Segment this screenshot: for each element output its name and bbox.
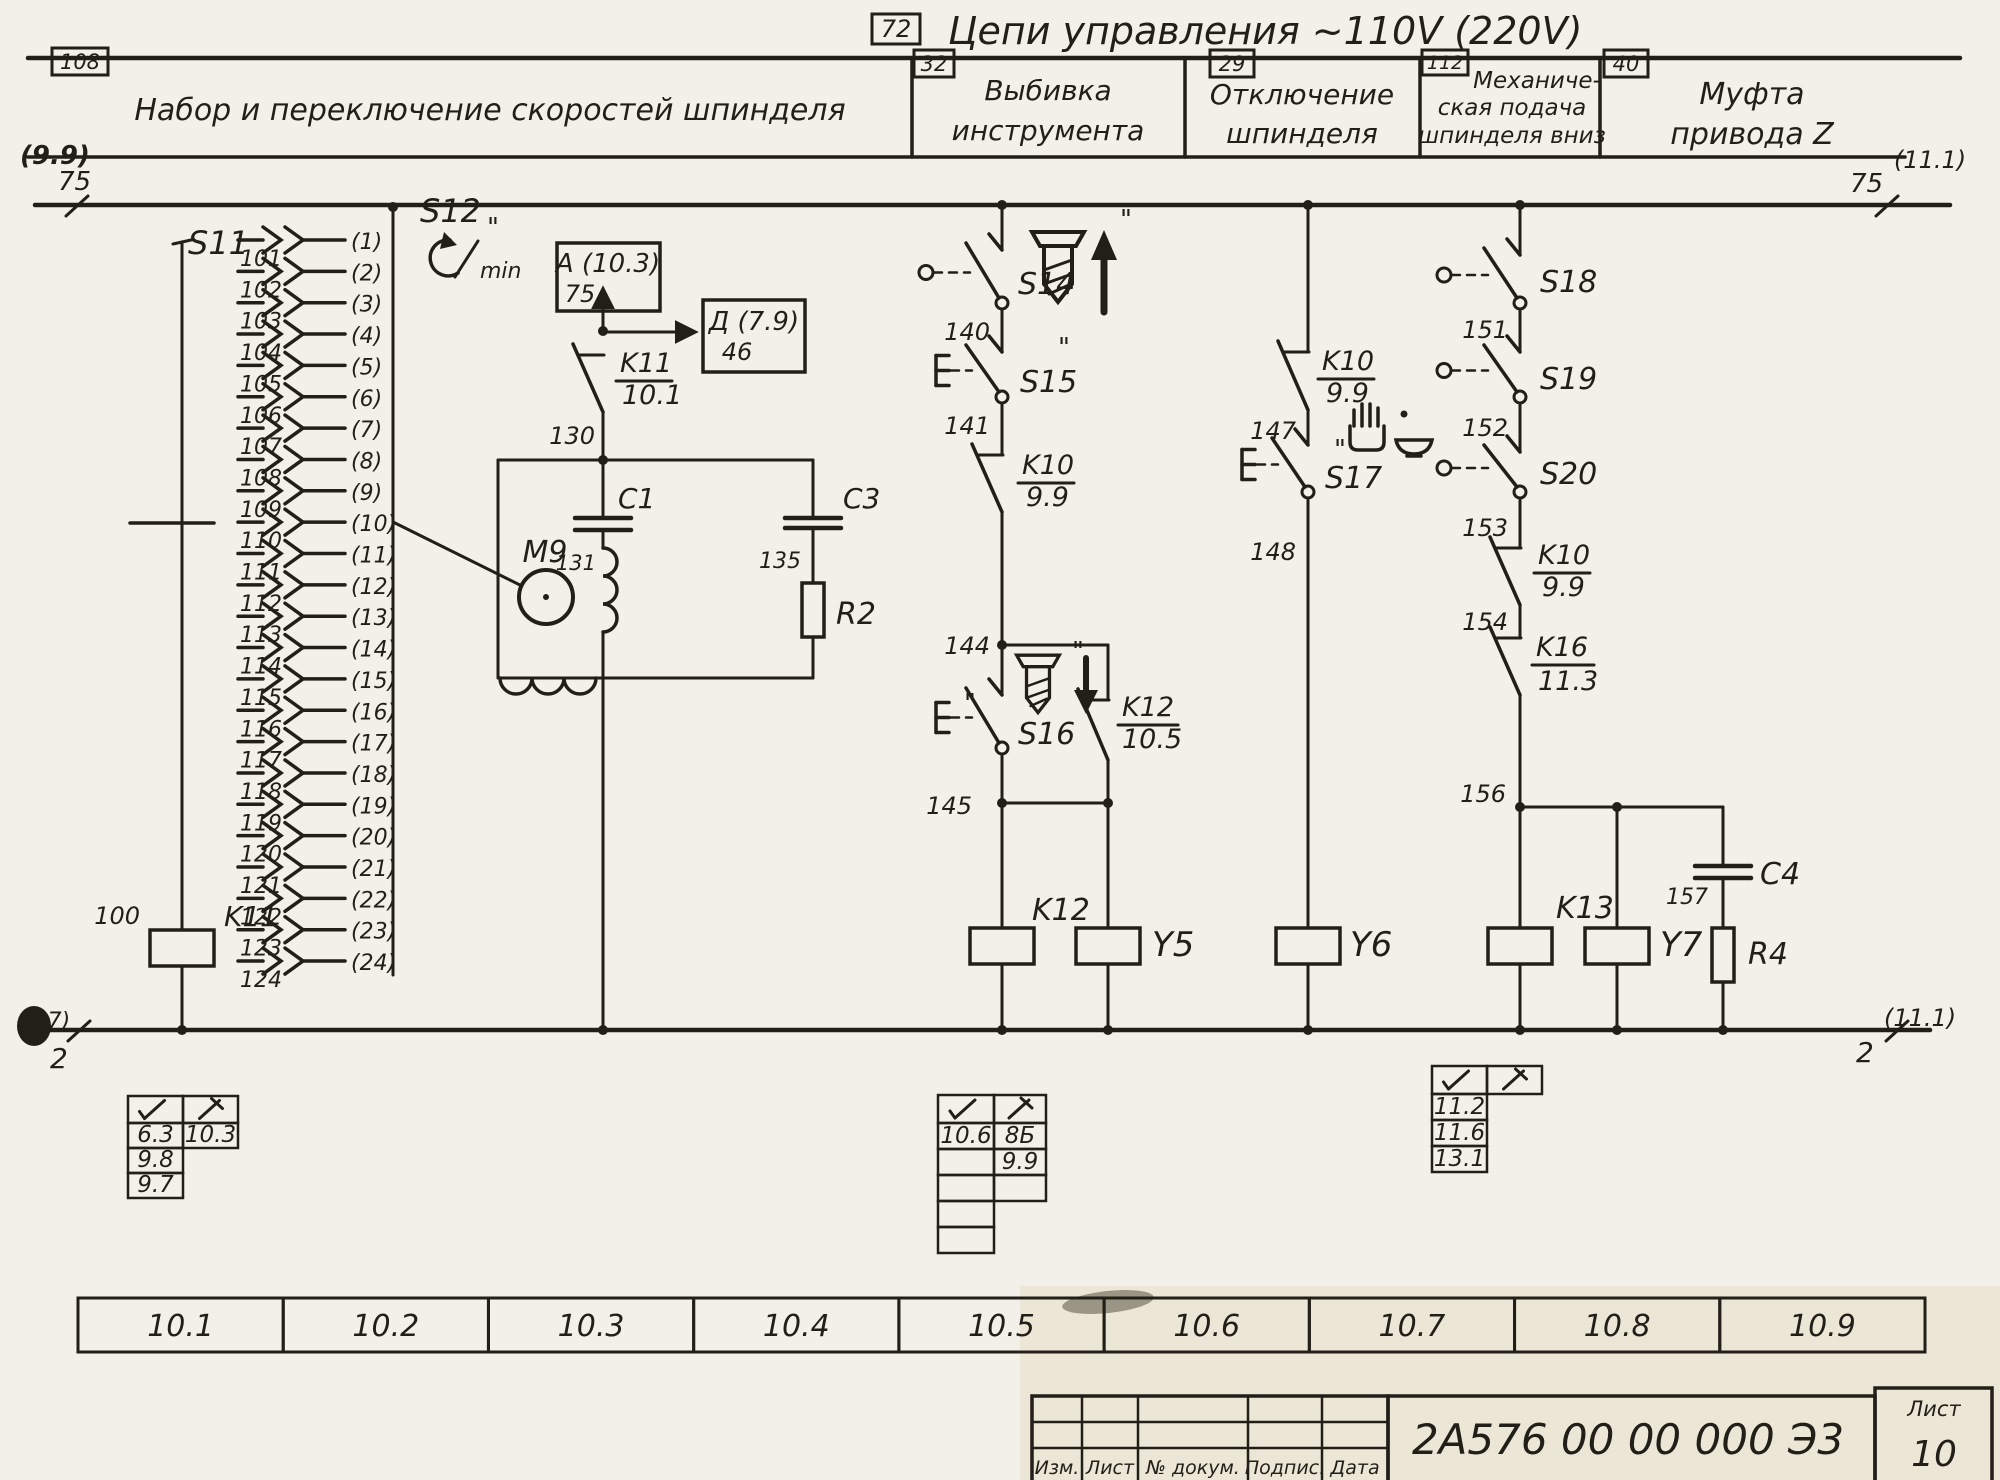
y5-solenoid bbox=[1076, 928, 1140, 964]
bus-wire: 2 bbox=[1856, 1036, 1874, 1069]
schematic-wiring: 101(1)102(2)103(3)104(4)105(5)106(6)107(… bbox=[28, 58, 1992, 1480]
wire bbox=[989, 679, 1002, 695]
wire-label: 156 bbox=[1460, 780, 1506, 808]
wire bbox=[285, 791, 303, 817]
ditto-mark: " bbox=[1072, 637, 1084, 667]
contact-number: (11) bbox=[351, 544, 396, 569]
ditto-mark: " bbox=[1058, 333, 1070, 363]
xref-value: 10.6 bbox=[940, 1123, 991, 1149]
contact-name: K12 bbox=[1122, 692, 1174, 723]
contact-number: (22) bbox=[351, 888, 396, 913]
wire-label: 153 bbox=[1462, 514, 1508, 542]
junction-dot bbox=[177, 1025, 187, 1035]
hand-icon bbox=[1350, 404, 1384, 450]
contact-number: (1) bbox=[351, 230, 382, 255]
contact-name: K10 bbox=[1322, 346, 1374, 377]
contact-number: (17) bbox=[351, 732, 396, 757]
wire bbox=[955, 1100, 975, 1118]
bus-wire: 75 bbox=[1850, 169, 1883, 199]
bus-wire: 2 bbox=[50, 1042, 68, 1075]
section-label: инструмента bbox=[952, 114, 1145, 147]
title-block-col-label: № докум. bbox=[1145, 1457, 1240, 1479]
coil-label: Y7 bbox=[1660, 925, 1703, 965]
ref-box-d-label: Д (7.9) bbox=[708, 307, 799, 337]
sheet-zone-number: 10.1 bbox=[147, 1309, 214, 1344]
junction-dot bbox=[598, 1025, 608, 1035]
s12-label: S12 bbox=[420, 192, 481, 230]
section-label: Выбивка bbox=[984, 74, 1111, 107]
xref-value: 8Б bbox=[1005, 1123, 1035, 1149]
wire bbox=[140, 1112, 145, 1119]
contact-terminal bbox=[996, 742, 1008, 754]
wire bbox=[285, 415, 303, 441]
sheet-zone-number: 10.3 bbox=[558, 1309, 625, 1344]
wire-label: 145 bbox=[926, 792, 972, 820]
xref-value: 9.9 bbox=[1002, 1149, 1039, 1175]
wire-label: 151 bbox=[1462, 316, 1508, 344]
dot-mark bbox=[1401, 411, 1408, 418]
section-label: ская подача bbox=[1438, 95, 1587, 121]
ref-box-a-wire: 75 bbox=[565, 280, 596, 308]
contact-name: K10 bbox=[1538, 540, 1590, 571]
contact-number: (24) bbox=[351, 951, 396, 976]
ditto-mark: " bbox=[487, 213, 499, 243]
title-block-col-label: Дата bbox=[1329, 1457, 1379, 1479]
junction-dot bbox=[1303, 1025, 1313, 1035]
contact-number: (13) bbox=[351, 606, 396, 631]
bus-wire: 75 bbox=[58, 167, 91, 197]
section-tag: 32 bbox=[921, 52, 948, 76]
xref-value: 10.3 bbox=[185, 1122, 236, 1148]
contact-terminal bbox=[1514, 391, 1526, 403]
section-tag: 40 bbox=[1613, 52, 1640, 76]
section-label: шпинделя bbox=[1226, 117, 1378, 150]
k12-coil bbox=[970, 928, 1034, 964]
wire bbox=[285, 948, 303, 974]
cap-label: C3 bbox=[843, 482, 880, 515]
wire bbox=[285, 509, 303, 535]
wire bbox=[1507, 239, 1520, 255]
wire bbox=[950, 1111, 955, 1118]
contact-terminal bbox=[1437, 364, 1451, 378]
contact-number: (15) bbox=[351, 669, 396, 694]
switch-label: S20 bbox=[1540, 457, 1597, 492]
sheet-zone-number: 10.9 bbox=[1789, 1309, 1856, 1344]
junction-dot bbox=[388, 202, 398, 212]
xref-table-left: 6.39.89.710.3 bbox=[137, 1122, 236, 1198]
ref-box-a-label: А (10.3) bbox=[554, 249, 660, 279]
schematic-static: 72 Цепи управления ~110V (220V) 108 32 2… bbox=[17, 9, 1966, 1075]
wire bbox=[1484, 445, 1517, 487]
coil-label: K12 bbox=[1032, 893, 1090, 928]
switch-label: S15 bbox=[1020, 365, 1077, 400]
wire-label: 140 bbox=[944, 318, 990, 346]
junction-dot bbox=[1718, 1025, 1728, 1035]
wire bbox=[145, 1101, 165, 1119]
sheet-zone-number: 10.6 bbox=[1173, 1309, 1240, 1344]
contact-number: (18) bbox=[351, 763, 396, 788]
wire bbox=[1272, 438, 1305, 487]
wire bbox=[966, 243, 999, 298]
wire-label: 157 bbox=[1666, 885, 1708, 910]
xref-table-right: 11.211.613.1 bbox=[1434, 1094, 1485, 1172]
cap-label: C1 bbox=[618, 482, 655, 515]
resistor-body bbox=[802, 583, 824, 637]
wire-label: 135 bbox=[759, 549, 801, 574]
contact-ref: 10.5 bbox=[1122, 724, 1182, 755]
wire bbox=[285, 227, 303, 253]
xref-cell bbox=[994, 1175, 1046, 1201]
contact-ref: 9.9 bbox=[1542, 572, 1585, 603]
arrow-up-head-icon bbox=[1091, 230, 1117, 260]
contact-name: K16 bbox=[1536, 632, 1588, 663]
contact-number: (2) bbox=[351, 261, 382, 286]
title-tag: 72 bbox=[881, 15, 912, 43]
section-label: привода Z bbox=[1670, 117, 1835, 152]
xref-cell bbox=[938, 1175, 994, 1201]
contact-terminal bbox=[1437, 461, 1451, 475]
sheet-label: Лист bbox=[1906, 1397, 1961, 1421]
wire bbox=[285, 384, 303, 410]
wire bbox=[285, 697, 303, 723]
wire bbox=[1295, 429, 1308, 445]
contact-terminal bbox=[996, 391, 1008, 403]
xref-value: 11.2 bbox=[1434, 1094, 1485, 1120]
ink-blob bbox=[17, 1006, 51, 1046]
xref-value: 9.8 bbox=[137, 1147, 174, 1173]
wire bbox=[285, 823, 303, 849]
wire-label: 148 bbox=[1250, 538, 1296, 566]
ditto-mark: " bbox=[1120, 205, 1132, 235]
winding-wave bbox=[500, 678, 596, 694]
sheet-number: 10 bbox=[1911, 1434, 1957, 1475]
s12-unit: min bbox=[480, 259, 522, 284]
wire bbox=[285, 258, 303, 284]
inductor-131 bbox=[603, 548, 617, 632]
resistor-label: R2 bbox=[836, 597, 876, 632]
contact-terminal bbox=[919, 266, 933, 280]
wire bbox=[285, 478, 303, 504]
section-label: Муфта bbox=[1699, 77, 1804, 112]
wire bbox=[1484, 345, 1517, 392]
contact-number: (10) bbox=[351, 512, 396, 537]
section-tag: 29 bbox=[1219, 52, 1246, 76]
ref-box-d-wire: 46 bbox=[722, 338, 753, 366]
wire bbox=[285, 446, 303, 472]
contact-number: (6) bbox=[351, 387, 382, 412]
section-label: Набор и переключение скоростей шпинделя bbox=[134, 93, 845, 128]
contact-terminal bbox=[1302, 486, 1314, 498]
k13-coil bbox=[1488, 928, 1552, 964]
title-block-col-label: Подпис. bbox=[1245, 1457, 1325, 1479]
wire bbox=[1507, 336, 1520, 352]
junction-dot bbox=[1103, 1025, 1113, 1035]
xref-value: 11.6 bbox=[1434, 1120, 1485, 1146]
wire-label: 131 bbox=[556, 551, 596, 575]
contact-ref: 11.3 bbox=[1538, 666, 1598, 697]
wire-label: 130 bbox=[549, 422, 595, 450]
contact-number: (3) bbox=[351, 293, 382, 318]
wire bbox=[285, 603, 303, 629]
contact-number: (12) bbox=[351, 575, 396, 600]
section-label: Отключение bbox=[1210, 78, 1394, 111]
wire bbox=[966, 345, 999, 392]
wire bbox=[285, 729, 303, 755]
wire-label: 152 bbox=[1462, 414, 1508, 442]
y7-solenoid bbox=[1585, 928, 1649, 964]
xref-value: 6.3 bbox=[137, 1122, 174, 1148]
wire-label: 100 bbox=[94, 902, 140, 930]
xref-cell bbox=[938, 1149, 994, 1175]
schematic-canvas: 72 Цепи управления ~110V (220V) 108 32 2… bbox=[0, 0, 2000, 1480]
contact-number: (9) bbox=[351, 481, 382, 506]
wire bbox=[1507, 436, 1520, 452]
wire bbox=[1444, 1082, 1449, 1089]
section-label: шпинделя вниз bbox=[1418, 123, 1606, 149]
wire bbox=[989, 336, 1002, 352]
switch-label: S17 bbox=[1325, 461, 1382, 496]
wire-label: 144 bbox=[944, 632, 990, 660]
contact-name: K11 bbox=[620, 348, 672, 379]
wire bbox=[285, 541, 303, 567]
junction-dot bbox=[1515, 1025, 1525, 1035]
contact-terminal bbox=[1514, 297, 1526, 309]
wire bbox=[1484, 248, 1517, 298]
drill-bit-icon bbox=[1017, 655, 1060, 712]
y6-solenoid bbox=[1276, 928, 1340, 964]
sheet-zone-strip: 10.110.210.310.410.510.610.710.810.9 bbox=[147, 1309, 1856, 1344]
contact-terminal bbox=[1437, 268, 1451, 282]
wire bbox=[285, 885, 303, 911]
xref-value: 13.1 bbox=[1434, 1146, 1485, 1172]
junction-dot bbox=[1612, 1025, 1622, 1035]
coil-label: K13 bbox=[1556, 891, 1614, 926]
contact-terminal bbox=[1514, 486, 1526, 498]
scanned-schematic-page: 72 Цепи управления ~110V (220V) 108 32 2… bbox=[0, 0, 2000, 1480]
contact-number: (16) bbox=[351, 700, 396, 725]
switch-label: S16 bbox=[1018, 717, 1075, 752]
pointer-line bbox=[393, 522, 522, 586]
wire bbox=[285, 572, 303, 598]
coil-label: Y6 bbox=[1350, 925, 1392, 965]
section-label: Механиче- bbox=[1473, 68, 1601, 94]
contact-number: (5) bbox=[351, 355, 382, 380]
k11-coil bbox=[150, 930, 214, 966]
doc-number: 2А576 00 00 000 Э3 bbox=[1412, 1415, 1844, 1464]
xref-value: 9.7 bbox=[137, 1172, 174, 1198]
wire bbox=[285, 290, 303, 316]
sheet-zone-number: 10.7 bbox=[1379, 1309, 1446, 1344]
title-block-col-label: Лист bbox=[1085, 1457, 1135, 1479]
section-tag: 112 bbox=[1427, 52, 1463, 74]
title-block-col-label: Изм. bbox=[1035, 1457, 1080, 1479]
contact-number: (14) bbox=[351, 638, 396, 663]
cap-label: C4 bbox=[1760, 857, 1800, 892]
wire bbox=[285, 666, 303, 692]
section-tag: 108 bbox=[60, 50, 100, 74]
wire bbox=[1449, 1071, 1469, 1089]
motor-center-dot bbox=[543, 594, 549, 600]
xref-cell bbox=[938, 1227, 994, 1253]
contact-name: K10 bbox=[1022, 450, 1074, 481]
contact-ref: 9.9 bbox=[1026, 482, 1069, 513]
resistor-body bbox=[1712, 928, 1734, 982]
wire-label: 141 bbox=[944, 412, 990, 440]
wire bbox=[285, 917, 303, 943]
xref-cell bbox=[938, 1201, 994, 1227]
contact-ref: 10.1 bbox=[622, 380, 682, 411]
switch-label: S18 bbox=[1540, 265, 1597, 300]
wire bbox=[285, 321, 303, 347]
contact-number: (21) bbox=[351, 857, 396, 882]
junction-dot bbox=[997, 1025, 1007, 1035]
wire-label: 154 bbox=[1462, 608, 1508, 636]
wire bbox=[285, 352, 303, 378]
contact-terminal bbox=[996, 297, 1008, 309]
rotation-arrowhead-icon bbox=[440, 232, 457, 249]
resistor-label: R4 bbox=[1748, 937, 1788, 972]
bus-ref: (11.1) bbox=[1894, 146, 1966, 174]
cup-icon bbox=[1396, 440, 1432, 456]
contact-number: (7) bbox=[351, 418, 382, 443]
wire bbox=[989, 234, 1002, 250]
contact-number: (4) bbox=[351, 324, 382, 349]
coil-label: Y5 bbox=[1152, 925, 1194, 965]
contact-number: (20) bbox=[351, 826, 396, 851]
slash-icon bbox=[455, 241, 478, 277]
contact-number: (23) bbox=[351, 920, 396, 945]
sheet-zone-number: 10.4 bbox=[763, 1309, 830, 1344]
contact-number: (8) bbox=[351, 449, 382, 474]
wire-label: 124 bbox=[240, 968, 282, 993]
wire bbox=[285, 635, 303, 661]
sheet-zone-number: 10.2 bbox=[352, 1309, 419, 1344]
sheet-zone-number: 10.5 bbox=[968, 1309, 1035, 1344]
switch-label: S19 bbox=[1540, 362, 1597, 397]
ditto-mark: " bbox=[1334, 435, 1346, 465]
wire bbox=[285, 854, 303, 880]
sheet-zone-number: 10.8 bbox=[1584, 1309, 1651, 1344]
wire bbox=[285, 760, 303, 786]
page-title: Цепи управления ~110V (220V) bbox=[948, 9, 1582, 53]
contact-number: (19) bbox=[351, 794, 396, 819]
